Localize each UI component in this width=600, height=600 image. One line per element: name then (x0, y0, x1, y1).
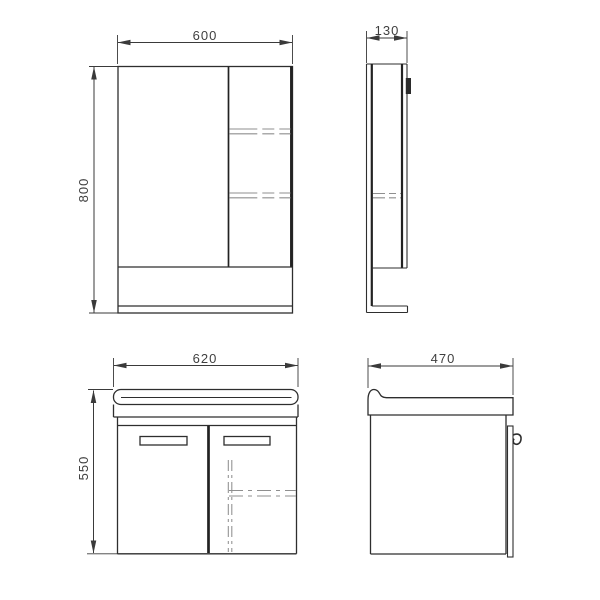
drawing-svg: 600 800 130 620 550 (0, 0, 600, 600)
vanity-front-view: 620 550 (76, 351, 298, 554)
side-shelf-hidden-lines (373, 194, 401, 198)
width-dimension-label: 620 (193, 351, 218, 366)
mirror-cabinet-front-view: 600 800 (76, 28, 293, 313)
side-cabinet-outline (371, 415, 507, 554)
right-door-handle (224, 437, 270, 446)
depth-dimension-label: 470 (431, 351, 456, 366)
bottom-panel-lines (118, 267, 293, 306)
basin-top-profile (368, 390, 513, 416)
side-door-handle (513, 434, 521, 444)
height-extension-lines (89, 67, 118, 314)
mirror-cabinet-side-view: 130 (367, 23, 412, 313)
width-dimension-label: 600 (193, 28, 218, 43)
height-dimension-label: 550 (76, 456, 91, 481)
vanity-side-view: 470 (368, 351, 521, 557)
side-door-panel (508, 426, 514, 557)
countertop-band (114, 405, 299, 418)
height-dimension-label: 800 (76, 178, 91, 203)
hidden-partition-lines (228, 460, 232, 552)
left-door-handle (140, 437, 187, 446)
depth-dimension-label: 130 (375, 23, 400, 38)
wall-mount-bracket (406, 78, 411, 94)
dimension-drawing-canvas: 600 800 130 620 550 (0, 0, 600, 600)
shelf-hidden-lines (229, 129, 290, 198)
side-panel-lines (372, 64, 402, 306)
hidden-shelf-lines (229, 491, 296, 497)
mirror-cabinet-outline (118, 67, 293, 314)
